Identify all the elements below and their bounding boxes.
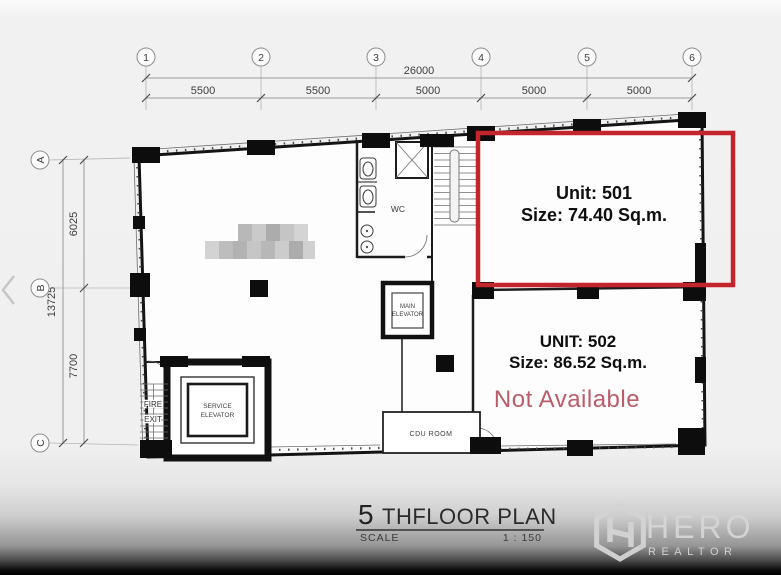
unit-502-size: Size: 86.52 Sq.m.	[509, 353, 647, 372]
cdu-room-label: CDU ROOM	[410, 431, 453, 438]
service-elevator: SERVICE ELEVATOR	[160, 356, 270, 458]
fire-exit-label: FIRE	[144, 400, 162, 409]
top-dimension-system: 26000 5500 5500 5000 5000 5000 1 2 3 4 5…	[137, 48, 701, 110]
hero-logo-h-mark	[610, 517, 631, 547]
dim-segment: 5000	[522, 85, 546, 97]
unit-502-name: UNIT: 502	[540, 332, 617, 351]
unit-501-size: Size: 74.40 Sq.m.	[521, 205, 667, 225]
carousel-prev-icon[interactable]	[3, 276, 14, 304]
watermark-brand-text: HERO	[646, 509, 754, 545]
unit-502-status: Not Available	[494, 386, 640, 413]
grid-bubble-label: 3	[373, 52, 379, 64]
floor-number: 5	[358, 499, 374, 530]
scale-label: SCALE	[360, 532, 399, 544]
grid-bubble-label: A	[35, 156, 47, 163]
grid-bubble-label: B	[35, 284, 47, 291]
grid-bubble-label: 1	[143, 52, 149, 64]
service-elevator-label: SERVICE	[203, 403, 232, 410]
dim-segment: 5500	[306, 85, 330, 97]
left-dimension-system: 13725 6025 7700 A B C	[31, 151, 138, 452]
title-block: 5 THFLOOR PLAN SCALE 1 : 150	[356, 499, 557, 544]
grid-bubbles-top: 1 2 3 4 5 6	[137, 48, 701, 66]
dim-segment: 5000	[627, 85, 651, 97]
scale-value: 1 : 150	[503, 532, 542, 544]
main-elevator: MAIN ELEVATOR	[383, 283, 432, 337]
watermark-tagline-text: REALTOR	[648, 546, 737, 558]
grid-bubble-label: C	[35, 439, 47, 447]
dim-segment: 5500	[191, 85, 215, 97]
grid-bubble-label: 6	[689, 52, 695, 64]
main-elevator-label: ELEVATOR	[392, 312, 424, 318]
fire-exit-label: EXIT	[144, 415, 162, 424]
dim-total-width: 26000	[404, 65, 435, 77]
main-elevator-label: MAIN	[400, 304, 415, 310]
grid-bubble-label: 4	[478, 52, 484, 64]
grid-bubble-label: 5	[584, 52, 590, 64]
cdu-room: CDU ROOM	[383, 412, 480, 453]
wc-label: WC	[391, 204, 405, 214]
brand-watermark: HERO REALTOR	[597, 505, 755, 559]
dim-segment: 7700	[68, 354, 80, 378]
dim-segment: 6025	[68, 212, 80, 236]
floor-plan-title: THFLOOR PLAN	[382, 504, 557, 529]
unit-501-name: Unit: 501	[556, 183, 632, 203]
grid-bubble-label: 2	[258, 52, 264, 64]
dim-segment: 5000	[416, 85, 440, 97]
floor-plan-image: 26000 5500 5500 5000 5000 5000 1 2 3 4 5…	[0, 0, 781, 575]
service-elevator-label: ELEVATOR	[201, 412, 235, 419]
